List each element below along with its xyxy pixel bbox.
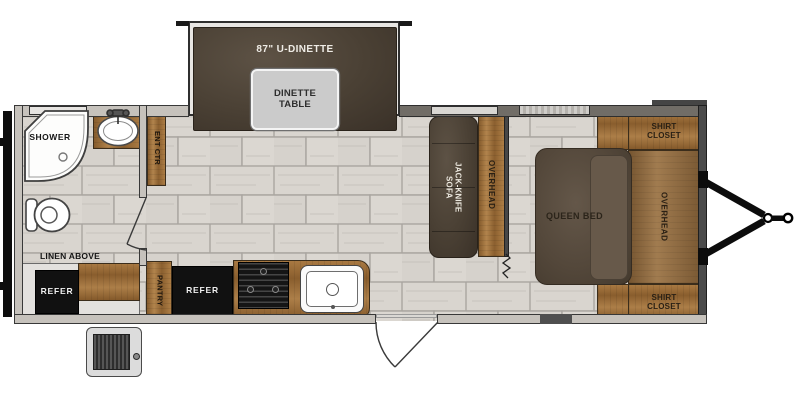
linen-above-label: LINEN ABOVE bbox=[30, 251, 110, 262]
range-knob-left bbox=[247, 286, 254, 293]
queen-bed-label: QUEEN BED bbox=[546, 211, 603, 221]
ent-ctr-cabinet: ENT CTR bbox=[147, 110, 166, 186]
entry-door-swing bbox=[376, 322, 438, 367]
window-above-shower bbox=[29, 106, 87, 115]
rear-cabinet-wood bbox=[78, 263, 140, 301]
range-knob-top bbox=[260, 268, 267, 275]
shirt-closet-bottom-label: SHIRT CLOSET bbox=[647, 293, 681, 311]
range-cooktop bbox=[238, 262, 289, 309]
dinette-table: DINETTE TABLE bbox=[251, 69, 339, 130]
refrigerator-left: REFER bbox=[35, 270, 79, 314]
nightstand-top bbox=[597, 112, 629, 150]
pantry-label: PANTRY bbox=[155, 275, 164, 306]
griddle-grate-icon bbox=[93, 334, 130, 370]
slideout-cap-left bbox=[176, 21, 189, 26]
overhead-cabinet-sofa: OVERHEAD bbox=[478, 112, 505, 257]
queen-bed: QUEEN BED bbox=[535, 148, 632, 285]
dinette-table-label: DINETTE TABLE bbox=[274, 89, 316, 111]
wall-bottom-left bbox=[14, 314, 376, 324]
bath-wall-stub-lower bbox=[139, 248, 147, 266]
bath-wall-stub-upper bbox=[139, 105, 147, 198]
exterior-griddle bbox=[86, 327, 142, 377]
wall-bottom-right bbox=[437, 314, 707, 324]
sofa-seam-top bbox=[432, 143, 475, 144]
window-above-sofa bbox=[431, 106, 498, 115]
entry-door-threshold bbox=[376, 314, 437, 318]
kitchen-sink-faucet-dot bbox=[331, 305, 335, 309]
overhead-bed-label: OVERHEAD bbox=[659, 192, 668, 241]
u-dinette-label: 87" U-DINETTE bbox=[194, 44, 396, 56]
kitchen-sink-drain-icon bbox=[326, 283, 339, 296]
wall-right bbox=[698, 105, 707, 324]
griddle-knob-icon bbox=[133, 353, 140, 360]
sofa-seam-bottom bbox=[432, 231, 475, 232]
shower-label: SHOWER bbox=[28, 131, 72, 143]
rear-bumper bbox=[3, 111, 12, 317]
ent-ctr-label: ENT CTR bbox=[152, 131, 161, 165]
jack-knife-sofa: JACK-KNIFE SOFA bbox=[429, 116, 478, 258]
window-above-bed bbox=[519, 105, 590, 115]
bumper-tab-top bbox=[0, 138, 4, 146]
bumper-tab-bottom bbox=[0, 282, 4, 290]
refer-left-label: REFER bbox=[41, 287, 74, 297]
bedroom-divider-wall bbox=[504, 110, 509, 257]
entry-step bbox=[540, 314, 572, 324]
shirt-closet-top: SHIRT CLOSET bbox=[628, 112, 700, 150]
overhead-cabinet-bed: OVERHEAD bbox=[628, 150, 700, 284]
wall-left bbox=[14, 105, 23, 324]
refer-right-label: REFER bbox=[186, 286, 219, 296]
pantry: PANTRY bbox=[146, 261, 172, 320]
sofa-seam-mid bbox=[432, 187, 475, 188]
kitchen-sink bbox=[300, 265, 364, 313]
overhead-sofa-label: OVERHEAD bbox=[487, 160, 496, 209]
slideout-cap-right bbox=[399, 21, 412, 26]
travel-trailer-floorplan: 87" U-DINETTE DINETTE TABLE ENT CTR REFE… bbox=[0, 0, 800, 400]
shirt-closet-top-label: SHIRT CLOSET bbox=[647, 122, 681, 140]
range-knob-right bbox=[272, 286, 279, 293]
refrigerator-right: REFER bbox=[172, 266, 233, 316]
hitch-icon bbox=[698, 171, 792, 265]
